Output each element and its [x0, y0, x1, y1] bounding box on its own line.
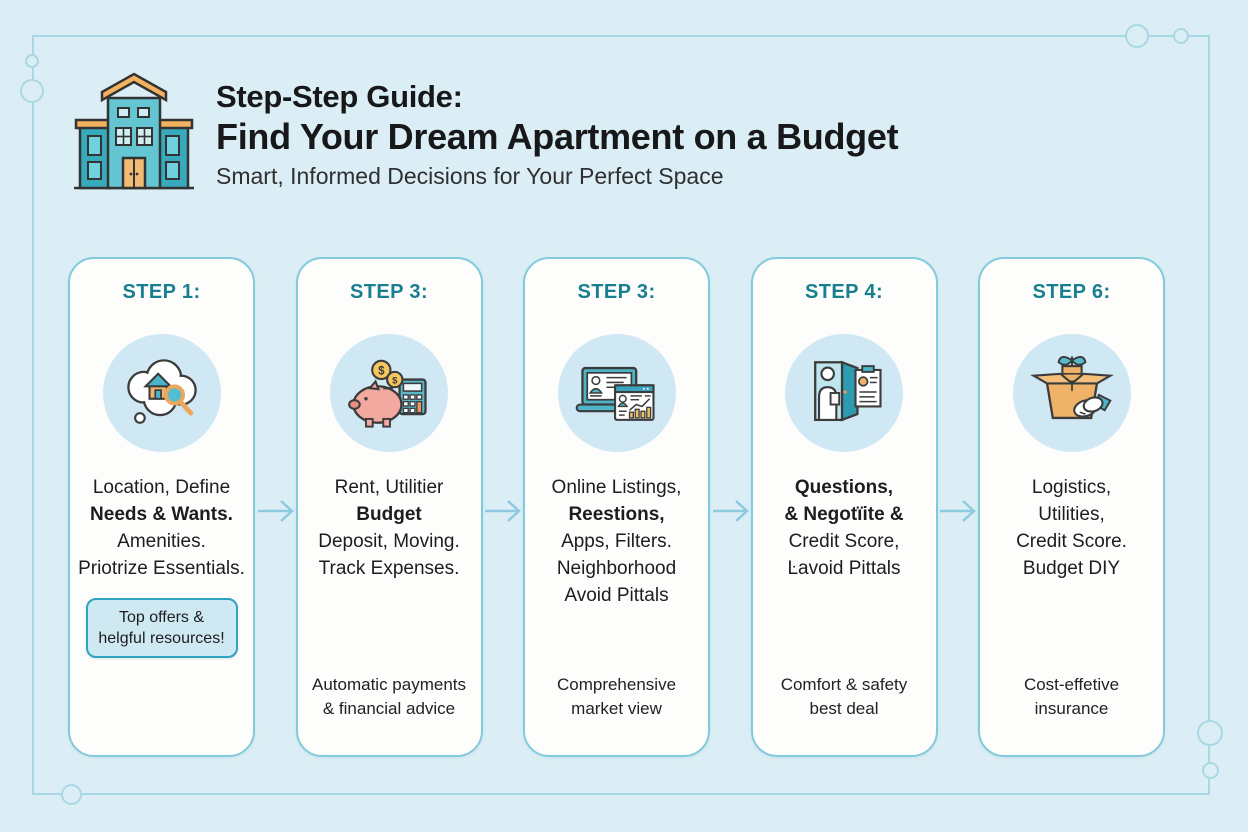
step-card-2: STEP 3: $ $ [296, 257, 483, 757]
step-line: Deposit, Moving. [298, 528, 481, 555]
step-line: Avoid Pittals [525, 582, 708, 609]
step-line: Logistics, [980, 474, 1163, 501]
step-line: Needs & Wants. [70, 501, 253, 528]
step-label: STEP 4: [753, 281, 936, 304]
piggy-bank-coins-calculator-icon: $ $ [330, 334, 448, 452]
step-footer-line2: insurance [980, 697, 1163, 721]
arrow-right-icon [483, 498, 525, 524]
step-footer-line1: Cost-effetive [980, 673, 1163, 697]
step-footer: Comprehensive market view [525, 673, 708, 721]
step-label: STEP 3: [525, 281, 708, 304]
step-line: Credit Score, [753, 528, 936, 555]
step-card-1: STEP 1: [68, 257, 255, 757]
step-card-5: STEP 6: [978, 257, 1165, 757]
step-line: Budget [298, 501, 481, 528]
header: Step-Step Guide: Find Your Dream Apartme… [70, 70, 898, 196]
step-footer-line2: & financial advice [298, 697, 481, 721]
step-label: STEP 6: [980, 281, 1163, 304]
step-line: Apps, Filters. [525, 528, 708, 555]
step-line: Utilities, [980, 501, 1163, 528]
frame-dot-small [1173, 28, 1189, 44]
step-footer-line1: Comprehensive [525, 673, 708, 697]
step-description: Logistics, Utilities, Credit Score. Budg… [980, 474, 1163, 582]
step-description: Rent, Utilitier Budget Deposit, Moving. … [298, 474, 481, 582]
frame-dot-large [1197, 720, 1223, 746]
step-description: Online Listings, Reestions, Apps, Filter… [525, 474, 708, 609]
apartment-building-icon [70, 70, 198, 196]
step-line: Rent, Utilitier [298, 474, 481, 501]
page-title-line1: Step-Step Guide: [216, 78, 898, 116]
frame-dot-large [1125, 24, 1149, 48]
step-footer: Automatic payments & financial advice [298, 673, 481, 721]
frame-dot-small [1202, 762, 1219, 779]
apartment-viewing-checklist-icon [785, 334, 903, 452]
offers-badge-line1: Top offers & [94, 607, 230, 628]
step-line: Credit Score. [980, 528, 1163, 555]
steps-row: STEP 1: [68, 257, 1165, 757]
header-titles: Step-Step Guide: Find Your Dream Apartme… [216, 70, 898, 190]
thought-bubble-house-search-icon [103, 334, 221, 452]
step-footer-line2: best deal [753, 697, 936, 721]
step-line: Track Expenses. [298, 555, 481, 582]
offers-badge-line2: helgful resources! [94, 628, 230, 649]
arrow-right-icon [938, 498, 980, 524]
step-line: Ŀavoid Pittals [753, 555, 936, 582]
step-description: Location, Define Needs & Wants. Amenitie… [70, 474, 253, 582]
page-title-line2: Find Your Dream Apartment on a Budget [216, 116, 898, 157]
arrow-right-icon [711, 498, 753, 524]
step-footer-line1: Comfort & safety [753, 673, 936, 697]
arrow-right-icon [256, 498, 298, 524]
step-line: Priotrize Essentials. [70, 555, 253, 582]
step-label: STEP 3: [298, 281, 481, 304]
page-subtitle: Smart, Informed Decisions for Your Perfe… [216, 163, 898, 190]
step-card-4: STEP 4: [751, 257, 938, 757]
step-line: & Negotïite & [753, 501, 936, 528]
frame-dot-large [20, 79, 44, 103]
step-label: STEP 1: [70, 281, 253, 304]
step-line: Location, Define [70, 474, 253, 501]
step-footer-line1: Automatic payments [298, 673, 481, 697]
step-footer: Cost-effetive insurance [980, 673, 1163, 721]
step-line: Reestions, [525, 501, 708, 528]
svg-text:$: $ [378, 365, 385, 377]
step-footer-line2: market view [525, 697, 708, 721]
step-line: Amenities. [70, 528, 253, 555]
infographic-page: Step-Step Guide: Find Your Dream Apartme… [0, 0, 1248, 832]
step-footer: Comfort & safety best deal [753, 673, 936, 721]
frame-dot-small [25, 54, 39, 68]
step-line: Online Listings, [525, 474, 708, 501]
step-line: Budget DIY [980, 555, 1163, 582]
frame-dot-medium [61, 784, 82, 805]
step-description: Questions, & Negotïite & Credit Score, Ŀ… [753, 474, 936, 582]
offers-badge: Top offers & helgful resources! [86, 598, 238, 658]
step-line: Questions, [753, 474, 936, 501]
step-line: Neighborhood [525, 555, 708, 582]
step-card-3: STEP 3: [523, 257, 710, 757]
laptop-online-listings-icon [558, 334, 676, 452]
moving-box-handshake-icon [1013, 334, 1131, 452]
svg-text:$: $ [392, 375, 398, 386]
